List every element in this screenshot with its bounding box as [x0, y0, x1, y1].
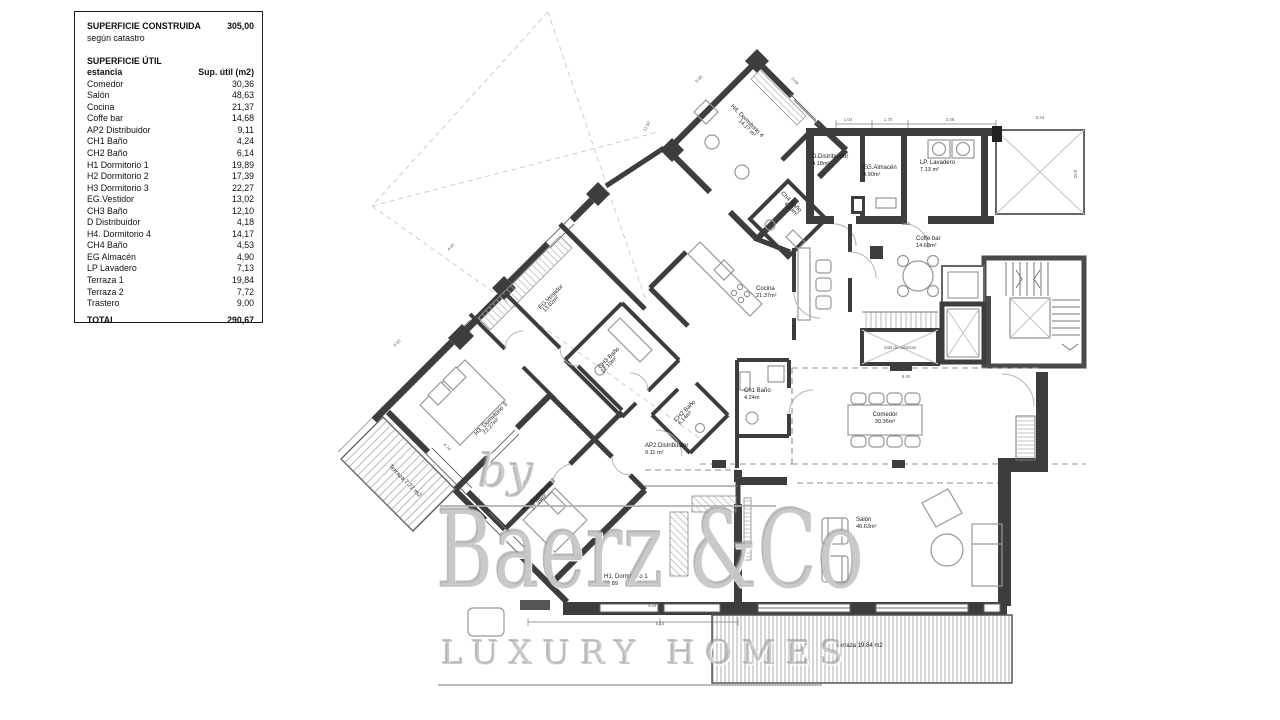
legend-row: CH4 Baño4,53: [87, 240, 254, 252]
dim-label: 12.50: [642, 120, 652, 133]
legend-row: Terraza 27,72: [87, 287, 254, 299]
legend-row-value: 48,63: [232, 90, 254, 102]
legend-row-name: H2 Dormitorio 2: [87, 171, 149, 183]
room-label-terraza-1: Terraza 19.84 m2: [836, 643, 883, 649]
legend-row: H2 Dormitorio 217,39: [87, 171, 254, 183]
legend-row-name: EG.Vestidor: [87, 194, 134, 206]
legend-row-value: 30,36: [232, 79, 254, 91]
dim-label: 3.34: [1036, 115, 1045, 120]
legend-col-room: estancia: [87, 67, 122, 79]
watermark-rule-bottom: [438, 684, 822, 686]
dim-label: sala de calderas: [884, 345, 917, 350]
legend-row: CH3 Baño12,10: [87, 206, 254, 218]
legend-section: SUPERFICIE ÚTIL: [87, 56, 254, 68]
sofa: [972, 524, 1002, 586]
dim-label: 3.04: [790, 76, 800, 86]
room-area-comedor: 30.36m²: [875, 419, 896, 425]
armchair: [822, 518, 848, 544]
dim-label: 4.54: [648, 603, 657, 608]
legend-row-value: 19,84: [232, 275, 254, 287]
legend-total-row: TOTAL 290,67: [87, 315, 254, 327]
dim-label: 4.74: [442, 442, 452, 452]
room-label-lp-lavadero: LP. Lavadero: [920, 160, 956, 166]
legend-row: CH1 Baño4,24: [87, 136, 254, 148]
terraza-1-deck: [712, 615, 1012, 683]
room-label-comedor: Comedor: [873, 412, 898, 418]
legend-row-value: 13,02: [232, 194, 254, 206]
legend-row-name: Comedor: [87, 79, 123, 91]
legend-row: H4. Dormitorio 414,17: [87, 229, 254, 241]
legend-title-value: 305,00: [227, 21, 254, 33]
legend-row: Cocina21,37: [87, 102, 254, 114]
boiler-room: [862, 312, 938, 364]
dim-label: 3.02: [1073, 170, 1078, 179]
dim-label: 6.50: [392, 338, 402, 348]
legend-row-name: AP2 Distribuidor: [87, 125, 151, 137]
legend-row-name: H4. Dormitorio 4: [87, 229, 151, 241]
legend-row-value: 19,89: [232, 160, 254, 172]
bedroom-wing: [341, 49, 846, 636]
column: [870, 246, 883, 259]
coffee-table: [903, 261, 933, 291]
dim-label: 5.14: [656, 621, 665, 626]
room-label-ap2-distribuidor: AP2.Distribuidor: [645, 443, 688, 449]
h1-wardrobe: [692, 496, 736, 512]
dim-label: 2.48: [946, 117, 955, 122]
legend-row-value: 14,68: [232, 113, 254, 125]
legend-row: H1 Dormitorio 119,89: [87, 160, 254, 172]
lounge-chair: [922, 489, 962, 527]
room-area-coffe-bar: 14.68m²: [916, 243, 937, 249]
legend-row-name: CH4 Baño: [87, 240, 128, 252]
terrace-chair: [468, 608, 504, 636]
legend-rows: Comedor30,36Salón48,63Cocina21,37Coffe b…: [87, 79, 254, 310]
legend-row-value: 12,10: [232, 206, 254, 218]
floorplan-page: H4. Dormitorio 414.17 m²Ch4 Baño4.53m²D.…: [0, 0, 1280, 720]
radiator: [744, 498, 751, 560]
armchair: [822, 556, 848, 582]
legend-row-name: CH2 Baño: [87, 148, 128, 160]
legend-row: Terraza 119,84: [87, 275, 254, 287]
room-area-salon: 46.63m²: [856, 524, 877, 530]
legend-row: EG Almacén4,90: [87, 252, 254, 264]
legend-row-name: Terraza 1: [87, 275, 124, 287]
legend-row-value: 17,39: [232, 171, 254, 183]
legend-row-value: 9,11: [238, 125, 254, 137]
room-label-d-distribuidor: D.Distribuidor: [812, 154, 848, 160]
pouf: [931, 534, 963, 566]
legend-row-value: 6,14: [237, 148, 254, 160]
room-area-d-distribuidor: 4.18m²: [812, 161, 830, 167]
legend-row-value: 4,24: [237, 136, 254, 148]
legend-col-area: Sup. útil (m2): [198, 67, 254, 79]
legend-row: EG.Vestidor13,02: [87, 194, 254, 206]
legend-row: H3 Dormitorio 322,27: [87, 183, 254, 195]
legend-row: AP2 Distribuidor9,11: [87, 125, 254, 137]
dim-label: 8.40: [902, 374, 911, 379]
legend-row-name: Cocina: [87, 102, 114, 114]
legend-row: Comedor30,36: [87, 79, 254, 91]
legend-row-value: 22,27: [232, 183, 254, 195]
h1-bedroom: [645, 470, 738, 606]
elevator-shaft: [942, 266, 984, 362]
room-area-eg-almacen: 4.90m²: [863, 172, 881, 178]
legend-subtitle: según catastro: [87, 33, 254, 45]
dim-label: 5.95: [694, 74, 704, 84]
h1-wardrobe: [670, 512, 688, 576]
legend-row: CH2 Baño6,14: [87, 148, 254, 160]
dim-label: 4.40: [446, 242, 456, 252]
legend-row: LP Lavadero7,13: [87, 263, 254, 275]
trastero-box: [992, 126, 1084, 214]
watermark-rule-top: [440, 505, 776, 507]
legend-row-value: 14,17: [232, 229, 254, 241]
legend-row-name: H3 Dormitorio 3: [87, 183, 149, 195]
dim-label: 5.26: [902, 221, 911, 226]
legend-row-name: EG Almacén: [87, 252, 136, 264]
legend-total-value: 290,67: [227, 315, 254, 327]
room-label-h1-dormitorio-1: H1. Dormitorio 1: [604, 574, 648, 580]
room-area-lp-lavadero: 7.13 m²: [920, 167, 939, 173]
stair-core: [984, 258, 1084, 366]
room-area-cocina: 21.37m²: [756, 293, 777, 299]
legend-row-name: CH1 Baño: [87, 136, 128, 148]
legend-row-value: 4,18: [237, 217, 254, 229]
legend-row-name: CH3 Baño: [87, 206, 128, 218]
legend-row-name: H1 Dormitorio 1: [87, 160, 149, 172]
legend-row-name: Trastero: [87, 298, 119, 310]
legend-row-value: 9,00: [237, 298, 254, 310]
legend-row: D Distribuidor4,18: [87, 217, 254, 229]
room-label-coffe-bar: Coffe bar: [916, 236, 941, 242]
legend-row-value: 7,13: [237, 263, 254, 275]
legend-row-name: LP Lavadero: [87, 263, 137, 275]
legend-row-name: Terraza 2: [87, 287, 124, 299]
legend-total-label: TOTAL: [87, 315, 116, 327]
dim-label: 1.04: [844, 117, 853, 122]
legend-title-row: SUPERFICIE CONSTRUIDA 305,00: [87, 21, 254, 33]
room-label-salon: Salón: [856, 517, 871, 523]
legend-column-headers: estancia Sup. útil (m2): [87, 67, 254, 79]
legend-row-name: Salón: [87, 90, 110, 102]
room-label-eg-almacen: EG.Almacén: [863, 165, 897, 171]
legend-panel: SUPERFICIE CONSTRUIDA 305,00 según catas…: [74, 11, 263, 323]
dim-label: 1.70: [884, 117, 893, 122]
room-label-ch1-bano: Ch1 Baño: [744, 388, 771, 394]
legend-row: Trastero9,00: [87, 298, 254, 310]
room-label-cocina: Cocina: [756, 286, 775, 292]
legend-title: SUPERFICIE CONSTRUIDA: [87, 21, 201, 33]
legend-row-value: 4,90: [237, 252, 254, 264]
room-area-h1-dormitorio-1: 19.89: [604, 581, 618, 587]
legend-row-value: 7,72: [237, 287, 254, 299]
legend-row: Coffe bar14,68: [87, 113, 254, 125]
legend-row-name: Coffe bar: [87, 113, 123, 125]
living-area: [520, 470, 1011, 626]
legend-row-value: 21,37: [232, 102, 254, 114]
room-area-ap2-distribuidor: 9.11 m²: [645, 450, 664, 456]
room-area-ch1-bano: 4.24m: [744, 395, 760, 401]
h4-wardrobe: [751, 70, 806, 125]
legend-row-value: 4,53: [237, 240, 254, 252]
legend-row-name: D Distribuidor: [87, 217, 140, 229]
legend-row: Salón48,63: [87, 90, 254, 102]
room-label-h4-dormitorio-4: H4. Dormitorio 4: [729, 104, 765, 140]
vestidor-closet: [478, 236, 572, 330]
